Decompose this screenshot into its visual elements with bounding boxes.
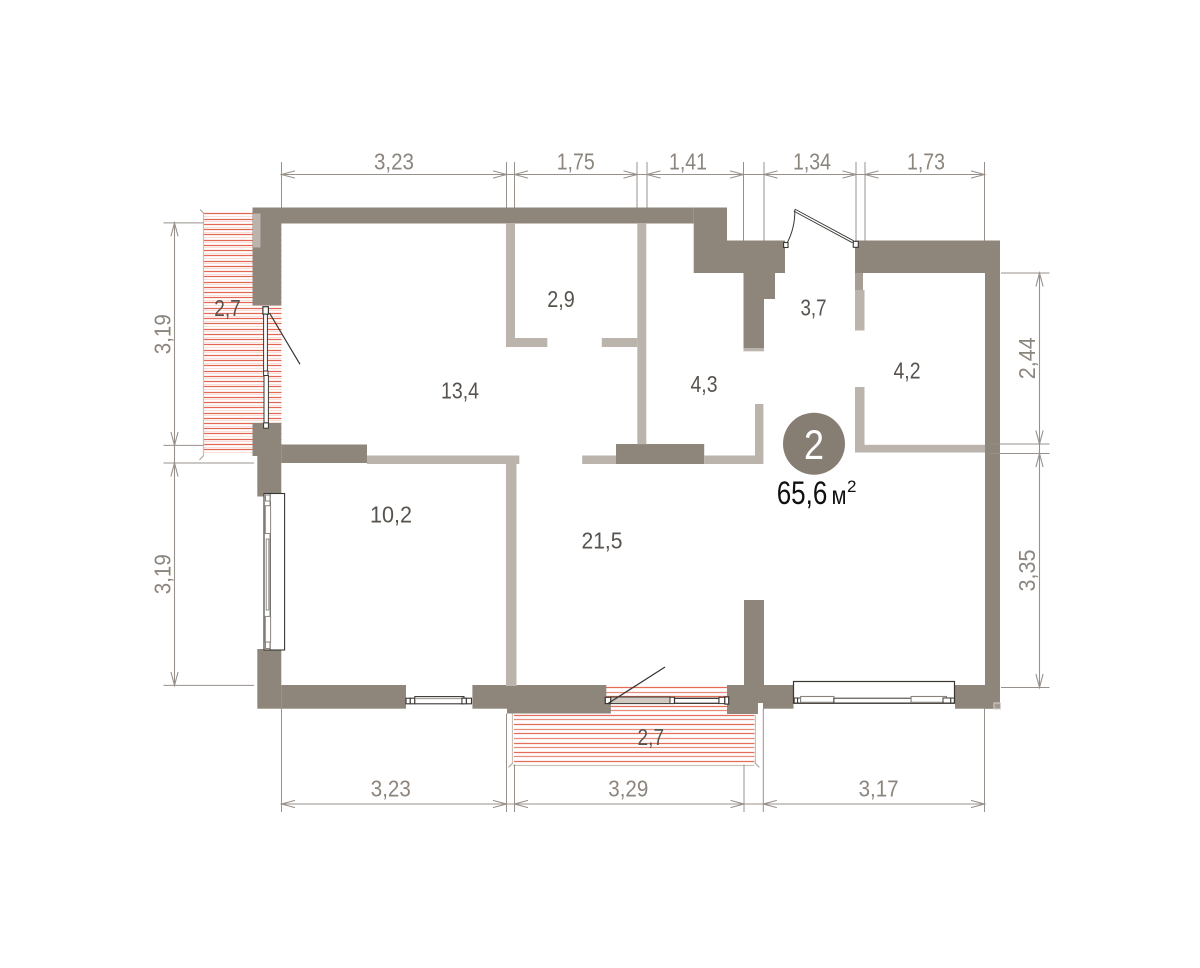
svg-text:1,73: 1,73	[907, 148, 945, 174]
svg-text:3,19: 3,19	[149, 314, 175, 354]
svg-text:2: 2	[847, 477, 856, 496]
svg-text:21,5: 21,5	[582, 527, 623, 553]
svg-text:3,7: 3,7	[801, 294, 827, 320]
svg-text:3,23: 3,23	[371, 776, 411, 802]
svg-text:65,6: 65,6	[777, 475, 828, 511]
svg-text:2,7: 2,7	[214, 295, 241, 321]
svg-text:1,34: 1,34	[793, 148, 831, 174]
svg-text:4,3: 4,3	[691, 371, 718, 397]
svg-text:3,19: 3,19	[149, 554, 175, 594]
svg-text:м: м	[832, 480, 847, 510]
svg-text:4,2: 4,2	[894, 358, 921, 384]
svg-text:3,17: 3,17	[859, 776, 899, 802]
svg-text:10,2: 10,2	[370, 501, 412, 527]
svg-text:13,4: 13,4	[441, 377, 479, 403]
svg-text:1,75: 1,75	[557, 148, 595, 174]
svg-text:2,44: 2,44	[1014, 337, 1040, 379]
svg-text:3,29: 3,29	[608, 776, 648, 802]
svg-text:3,35: 3,35	[1014, 550, 1040, 592]
svg-text:3,23: 3,23	[374, 148, 414, 174]
svg-text:2,7: 2,7	[638, 724, 665, 750]
svg-text:1,41: 1,41	[669, 148, 707, 174]
svg-text:2: 2	[804, 421, 824, 468]
svg-text:2,9: 2,9	[547, 286, 575, 312]
